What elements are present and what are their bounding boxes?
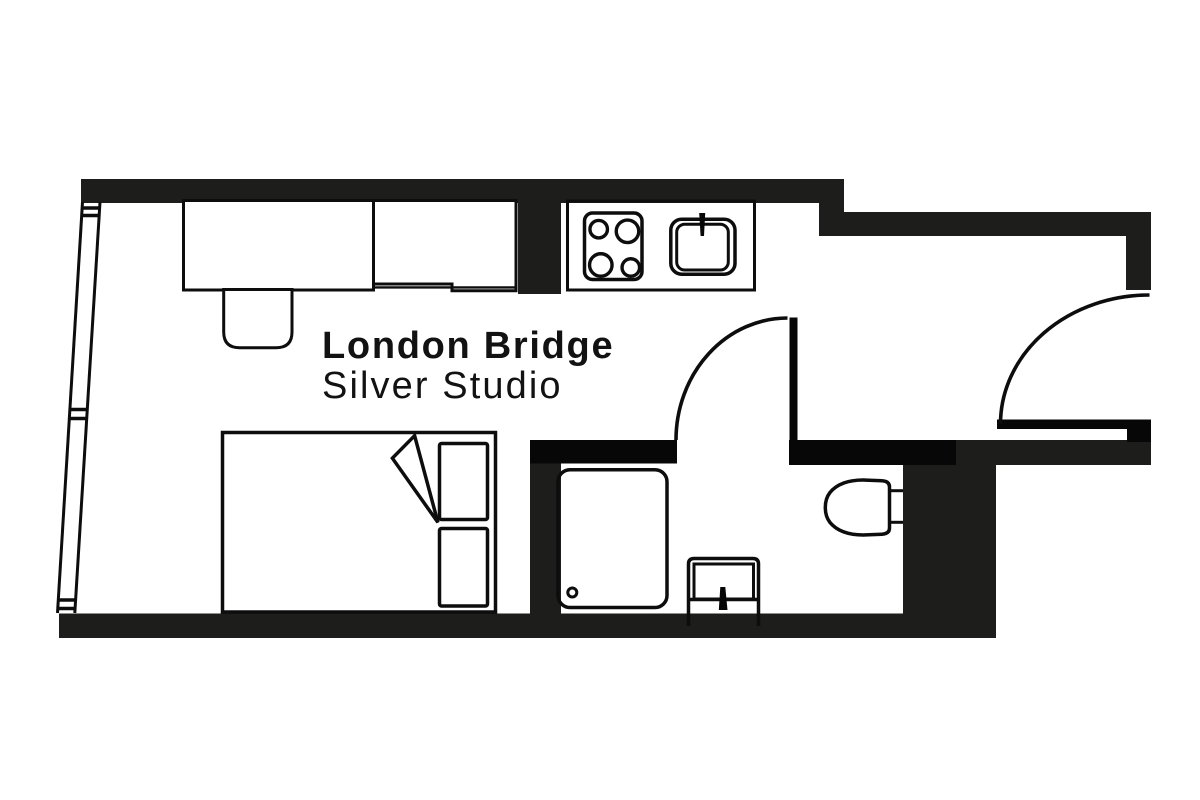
- svg-text:London Bridge: London Bridge: [322, 325, 614, 367]
- svg-text:Silver Studio: Silver Studio: [322, 365, 563, 407]
